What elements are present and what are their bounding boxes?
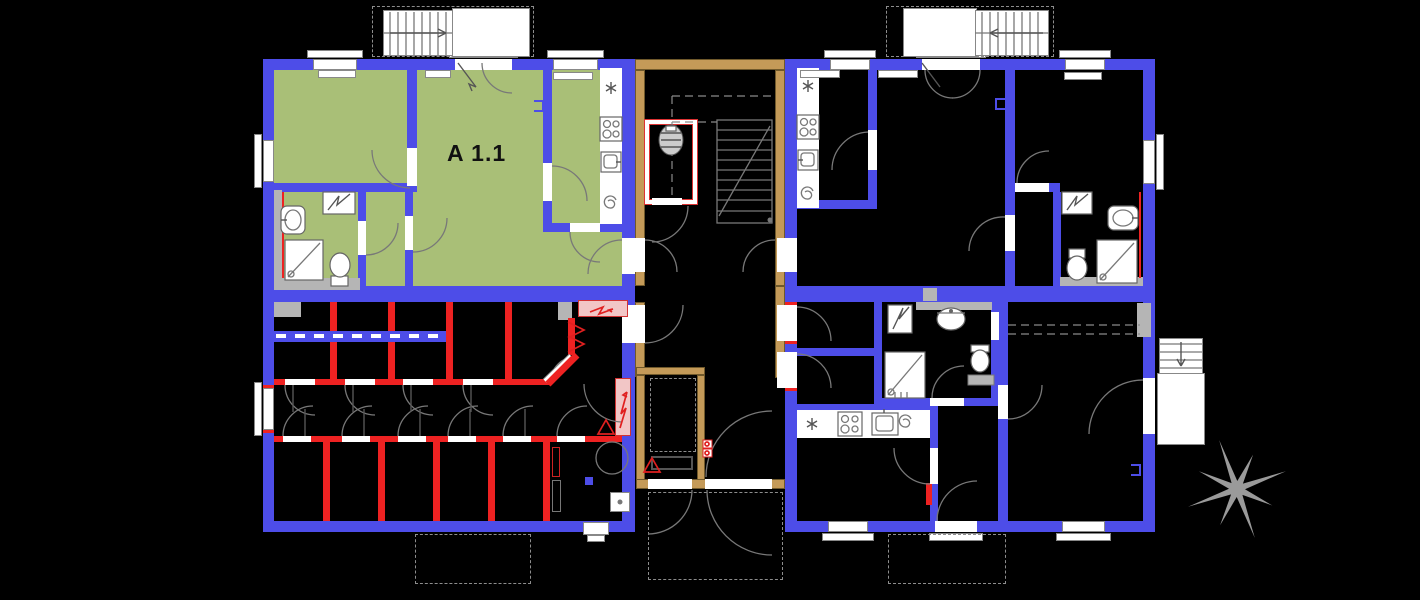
door-leaf-lines xyxy=(458,63,940,381)
stove-burners-icon xyxy=(838,412,862,436)
bath-sink-icon xyxy=(937,308,965,330)
shower-icon xyxy=(1097,240,1137,283)
kitchen-sink-icon xyxy=(872,409,898,435)
beam-dashed-lines xyxy=(1008,325,1140,334)
floor-plan-canvas: A 1.1 xyxy=(0,0,1420,600)
toilet-icon xyxy=(1067,249,1087,280)
boiler-icon xyxy=(888,305,912,333)
storage-door-arcs xyxy=(283,385,587,436)
compass-rose-icon xyxy=(1188,440,1286,538)
bath-sink-icon xyxy=(1108,206,1138,230)
shower-icon xyxy=(885,352,925,398)
kitchen-sink-icon xyxy=(798,150,818,170)
stove-burners-icon xyxy=(797,115,819,139)
toilet-icon xyxy=(968,345,994,385)
exterior-stair-treads xyxy=(383,12,1202,368)
toilet-icon xyxy=(330,253,350,286)
stove-burners-icon xyxy=(600,117,622,141)
boiler-icon xyxy=(323,192,355,214)
central-stair-treads xyxy=(672,96,773,223)
boiler-icon xyxy=(1062,192,1092,214)
elevator-cab-icon xyxy=(659,125,683,155)
fridge-asterisk-icon xyxy=(606,80,817,430)
storage-wall-diagonal-red xyxy=(548,355,577,384)
lobby-fixtures xyxy=(596,442,628,505)
linework-overlay xyxy=(0,0,1420,600)
shower-icon xyxy=(285,240,323,280)
electrical-symbols xyxy=(568,307,712,472)
bath-sink-icon xyxy=(281,206,305,234)
door-swing-arcs xyxy=(366,63,1143,555)
kitchen-sink-icon xyxy=(601,152,621,172)
